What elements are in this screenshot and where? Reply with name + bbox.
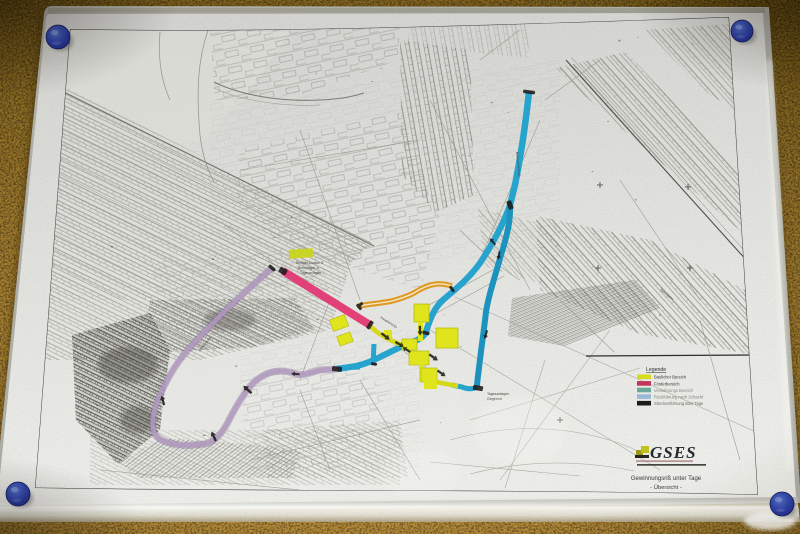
svg-text:Streckenführung über Tage: Streckenführung über Tage	[654, 401, 704, 406]
svg-text:Schacht Gustav II: Schacht Gustav II	[296, 261, 323, 265]
svg-text:Legende: Legende	[646, 367, 666, 373]
svg-text:Rückführung nach Schacht: Rückführung nach Schacht	[654, 395, 704, 400]
svg-text:Verwahrungs Bereich: Verwahrungs Bereich	[654, 388, 694, 393]
svg-text:Tagesanlagen: Tagesanlagen	[300, 271, 321, 275]
svg-text:Gewinnungsriß unter Tage: Gewinnungsriß unter Tage	[631, 476, 702, 482]
svg-text:Tagesanlagen: Tagesanlagen	[487, 392, 509, 396]
svg-text:Betriebsgel. u.: Betriebsgel. u.	[298, 266, 320, 270]
svg-text:- Übersicht -: - Übersicht -	[650, 484, 682, 491]
svg-text:GSES: GSES	[650, 443, 697, 462]
svg-text:Förderbereich: Förderbereich	[654, 381, 680, 386]
svg-text:Baulicher Bereich: Baulicher Bereich	[654, 375, 687, 380]
